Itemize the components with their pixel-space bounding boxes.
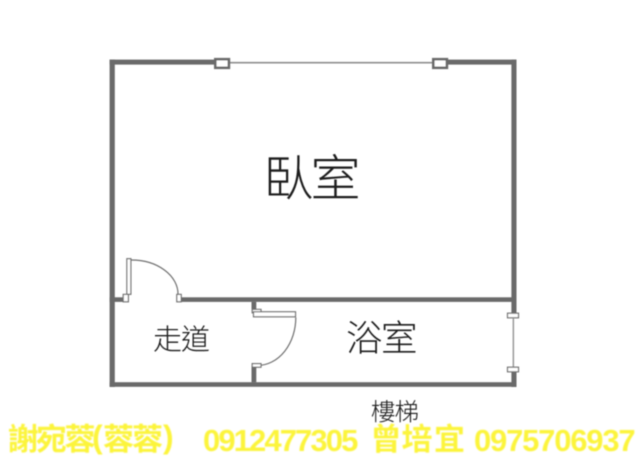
svg-text:(: (: [92, 419, 103, 455]
svg-text:0975706937: 0975706937: [474, 423, 634, 458]
svg-text:0912477305: 0912477305: [203, 423, 358, 458]
svg-text:): ): [163, 419, 174, 455]
